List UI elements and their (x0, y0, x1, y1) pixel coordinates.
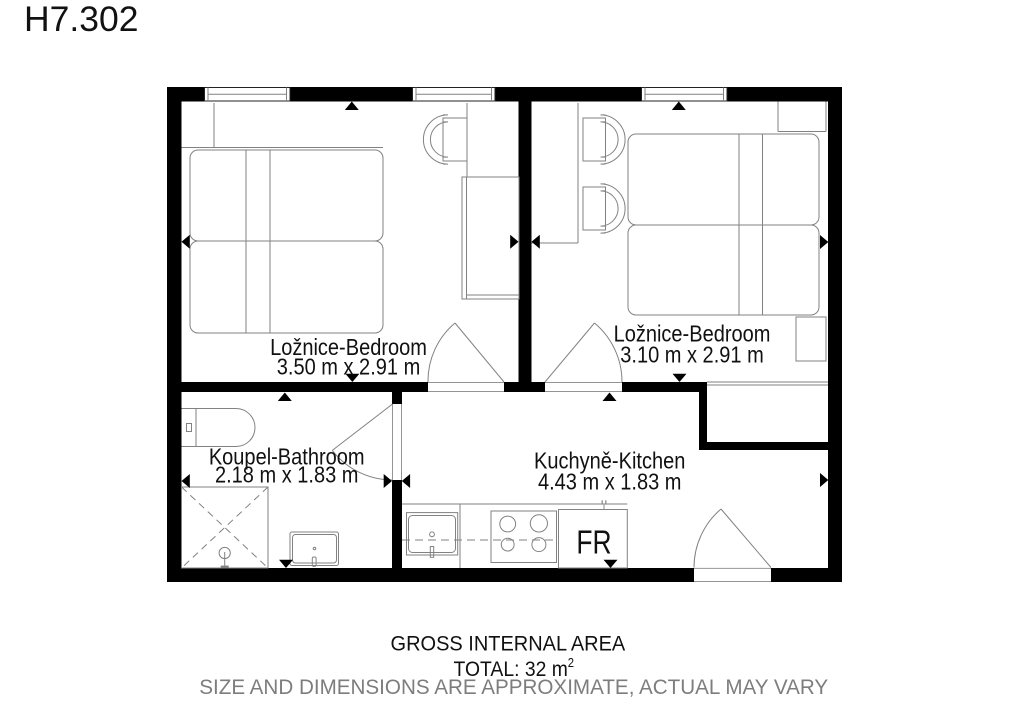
svg-text:H7.302: H7.302 (24, 0, 138, 39)
svg-text:3.10 m x 2.91 m: 3.10 m x 2.91 m (620, 341, 764, 368)
svg-text:GROSS INTERNAL AREA: GROSS INTERNAL AREA (391, 632, 626, 656)
svg-text:3.50 m x 2.91 m: 3.50 m x 2.91 m (277, 353, 421, 380)
svg-text:2.18 m x 1.83 m: 2.18 m x 1.83 m (215, 461, 359, 488)
svg-text:4.43 m x 1.83 m: 4.43 m x 1.83 m (538, 468, 682, 495)
svg-text:FR: FR (576, 525, 611, 561)
svg-text:SIZE AND DIMENSIONS ARE APPROX: SIZE AND DIMENSIONS ARE APPROXIMATE, ACT… (199, 676, 828, 699)
